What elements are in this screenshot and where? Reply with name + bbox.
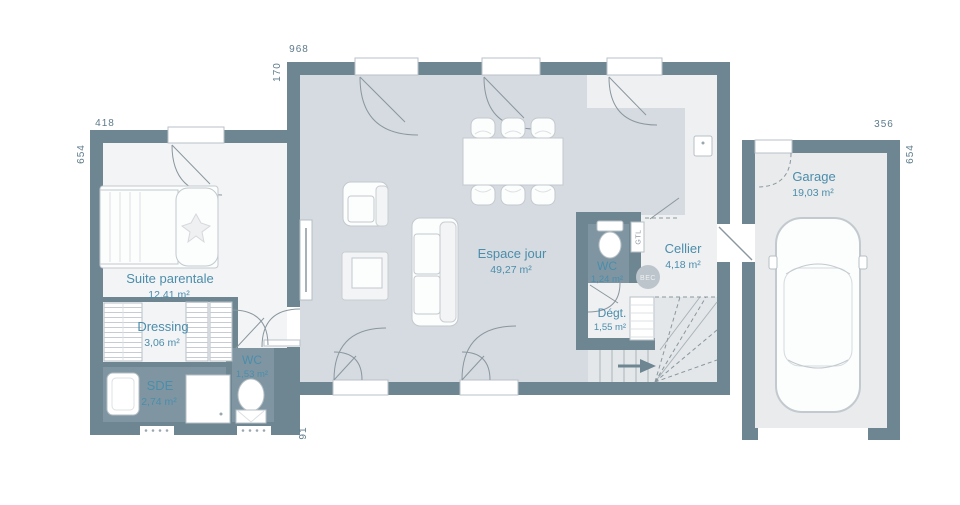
dining-chairs-top — [471, 118, 555, 138]
cellier-name: Cellier — [665, 241, 703, 256]
wc2-area: 1,24 m² — [591, 274, 623, 285]
dim-bottom-offset: 91 — [298, 426, 309, 439]
floorplan-drawing: GTL BEC Suite parentale 12,41 m² Dressin… — [0, 0, 960, 505]
espace-jour-area: 49,27 m² — [490, 264, 532, 276]
dining-table — [463, 138, 563, 185]
suite-name: Suite parentale — [126, 271, 213, 286]
shower — [186, 375, 230, 423]
wc1-area: 1,53 m² — [236, 369, 268, 380]
wc2-toilet — [597, 221, 623, 258]
garage-area: 19,03 m² — [792, 187, 834, 199]
wardrobe-right-1 — [186, 302, 208, 361]
dining-set — [463, 118, 563, 205]
wc1-toilet — [236, 379, 266, 423]
suite-area: 12,41 m² — [148, 289, 190, 301]
degagement-cupboard — [630, 297, 654, 340]
floorplan: GTL BEC Suite parentale 12,41 m² Dressin… — [0, 0, 960, 505]
sofa — [412, 218, 458, 326]
coffee-table — [342, 252, 388, 300]
gtl-label: GTL — [636, 229, 643, 244]
garage-door-opening — [758, 428, 868, 440]
wc1-name: WC — [242, 353, 262, 367]
suite-window — [168, 127, 224, 143]
hall-door-leaf — [264, 340, 300, 346]
entry-door — [355, 58, 418, 75]
dim-garage-width: 356 — [874, 119, 894, 130]
car-mirror-right — [859, 256, 867, 269]
garage-side-door — [755, 140, 792, 153]
armchair — [343, 182, 388, 226]
french-window-1 — [333, 380, 388, 395]
wc2-name: WC — [597, 259, 617, 273]
bec-marker: BEC — [636, 265, 660, 289]
car — [769, 218, 867, 412]
kitchen-sink — [694, 136, 712, 156]
living-window-1 — [482, 58, 540, 75]
french-window-2 — [460, 380, 518, 395]
car-mirror-left — [769, 256, 777, 269]
tv-unit — [300, 220, 312, 300]
degagement-name: Dégt. — [598, 306, 627, 320]
passage-to-garage — [717, 224, 755, 262]
bed — [100, 186, 218, 268]
espace-jour-name: Espace jour — [478, 246, 547, 261]
dim-main-offset: 170 — [272, 62, 283, 82]
garage-name: Garage — [792, 169, 835, 184]
dim-suite-height: 654 — [76, 144, 87, 164]
gtl-box: GTL — [631, 222, 644, 252]
wardrobe-left — [104, 303, 142, 361]
dining-chairs-bottom — [471, 185, 555, 205]
dim-suite-width: 418 — [95, 118, 115, 129]
dim-main-width: 968 — [289, 44, 309, 55]
wardrobe-right-2 — [210, 302, 232, 361]
dim-garage-height: 654 — [905, 144, 916, 164]
dressing-name: Dressing — [137, 319, 188, 334]
kitchen-window — [607, 58, 662, 75]
degagement-area: 1,55 m² — [594, 322, 626, 333]
sde-area: 2,74 m² — [141, 396, 177, 408]
sde-name: SDE — [147, 378, 174, 393]
dressing-area: 3,06 m² — [144, 337, 180, 349]
cellier-area: 4,18 m² — [665, 259, 701, 271]
bec-label: BEC — [640, 275, 656, 282]
